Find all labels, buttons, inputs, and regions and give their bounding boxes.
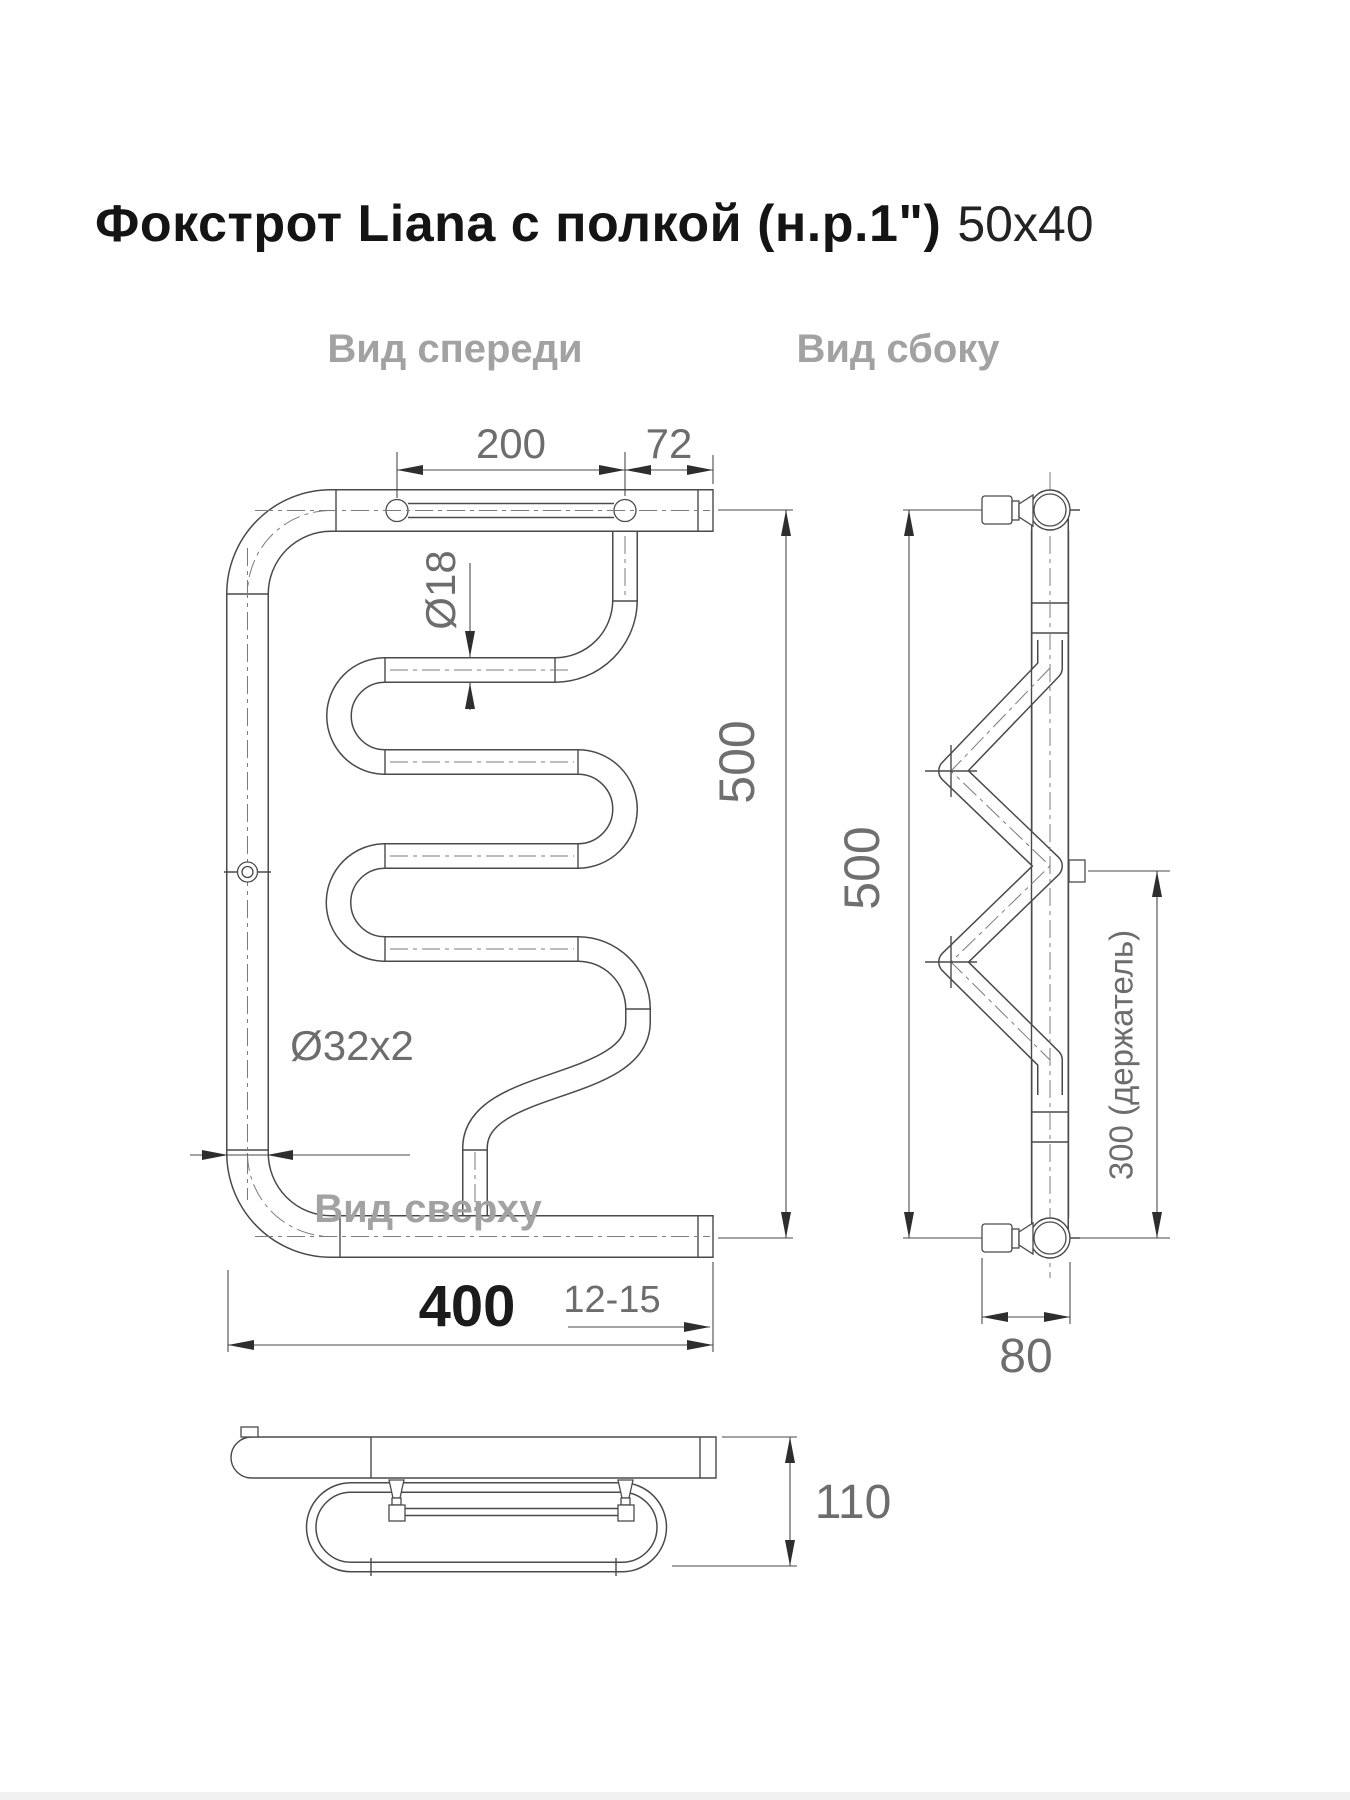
- side-top-fitting-nut: [982, 496, 1012, 524]
- dim-top-depth: 110: [815, 1476, 892, 1529]
- top-coil-loop-outline: [311, 1488, 662, 1568]
- side-dim-height: 500: [834, 510, 914, 1238]
- dim-holder-spacing: 300 (держатель): [1103, 930, 1140, 1180]
- side-view-label: Вид сбоку: [796, 327, 1000, 371]
- top-view-label: Вид сверху: [314, 1187, 542, 1231]
- side-bottom-fitting-nut: [982, 1224, 1012, 1252]
- top-bracket-right-cone: [618, 1480, 633, 1498]
- front-view-label: Вид спереди: [327, 327, 582, 371]
- side-bottom-fitting-cone: [1019, 1223, 1033, 1254]
- dim-coil-pipe-diameter: Ø18: [417, 550, 464, 629]
- side-top-pipe-circle: [1030, 490, 1070, 530]
- front-coil-pipe-fill: [339, 532, 639, 1216]
- side-view: Вид сбоку: [796, 327, 1170, 1383]
- drawing-page: Фокстрот Liana с полкой (н.р.1")50x40 Ви…: [0, 0, 1350, 1800]
- front-dim-200-72: 200 72: [397, 420, 713, 498]
- front-dim-pipe32: Ø32x2: [190, 1022, 414, 1160]
- dim-side-height: 500: [834, 826, 890, 909]
- side-dim-depth: 80: [982, 1258, 1070, 1383]
- technical-drawing: Вид спереди: [0, 0, 1350, 1800]
- dim-side-depth: 80: [999, 1330, 1052, 1383]
- mount-circle-inner: [242, 867, 253, 878]
- top-bracket-right-end: [618, 1505, 634, 1521]
- side-top-connection: [982, 490, 1070, 530]
- top-air-vent: [241, 1427, 258, 1437]
- front-dim-height: 500: [709, 510, 793, 1238]
- top-bracket-left-cone: [389, 1480, 404, 1498]
- side-wall-holder: [1069, 860, 1085, 882]
- top-shelf-bar: [231, 1437, 716, 1478]
- side-dim-holder: 300 (держатель): [1080, 871, 1170, 1238]
- dim-front-width: 400: [419, 1274, 516, 1339]
- side-top-fitting-cone: [1019, 495, 1033, 526]
- top-coil-loop-fill: [311, 1488, 662, 1568]
- top-bracket-left-end: [389, 1505, 405, 1521]
- front-dim-pipe18: Ø18: [417, 550, 475, 710]
- dim-front-height: 500: [709, 720, 765, 803]
- dim-shelf-rod-length: 200: [476, 420, 546, 467]
- side-bottom-connection: [982, 1218, 1070, 1258]
- side-bottom-pipe-circle: [1030, 1218, 1070, 1258]
- dim-wall-clearance: 12-15: [563, 1279, 660, 1321]
- front-dim-wall-clearance: 12-15: [563, 1279, 710, 1332]
- dim-shelf-overhang: 72: [646, 420, 693, 467]
- page-bottom-strip: [0, 1792, 1350, 1800]
- dim-main-pipe-diameter: Ø32x2: [290, 1022, 414, 1069]
